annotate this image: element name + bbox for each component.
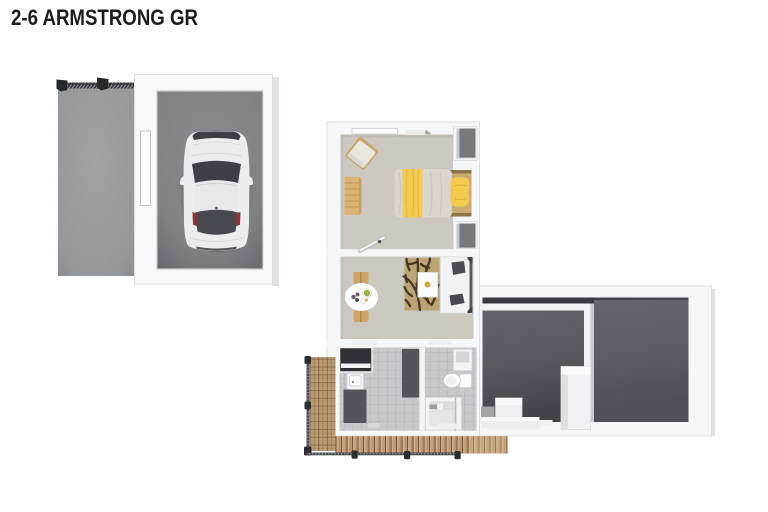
svg-text:2-6 ARMSTRONG GR: 2-6 ARMSTRONG GR bbox=[11, 5, 198, 30]
